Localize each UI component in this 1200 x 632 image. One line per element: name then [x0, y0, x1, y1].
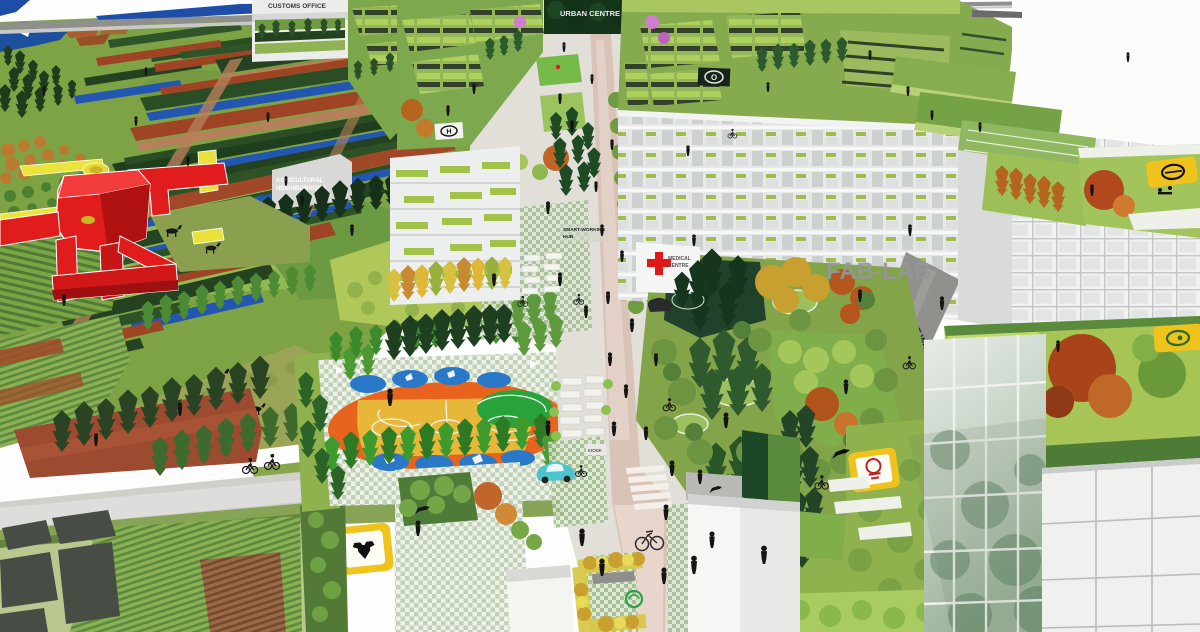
svg-text:FAB-LAB: FAB-LAB	[826, 258, 931, 285]
svg-text:AGRICULTURAL: AGRICULTURAL	[276, 178, 324, 184]
svg-text:CENTRE: CENTRE	[668, 263, 689, 269]
svg-text:MEDICAL: MEDICAL	[668, 256, 691, 262]
svg-text:CUSTOMS OFFICE: CUSTOMS OFFICE	[268, 3, 327, 10]
svg-text:SMART-WORKING: SMART-WORKING	[563, 227, 605, 233]
svg-text:HUB: HUB	[563, 234, 574, 240]
svg-text:H: H	[446, 128, 452, 135]
svg-text:URBAN CENTRE: URBAN CENTRE	[560, 9, 620, 18]
svg-text:O: O	[711, 73, 718, 82]
svg-text:KIOSK: KIOSK	[588, 448, 602, 453]
